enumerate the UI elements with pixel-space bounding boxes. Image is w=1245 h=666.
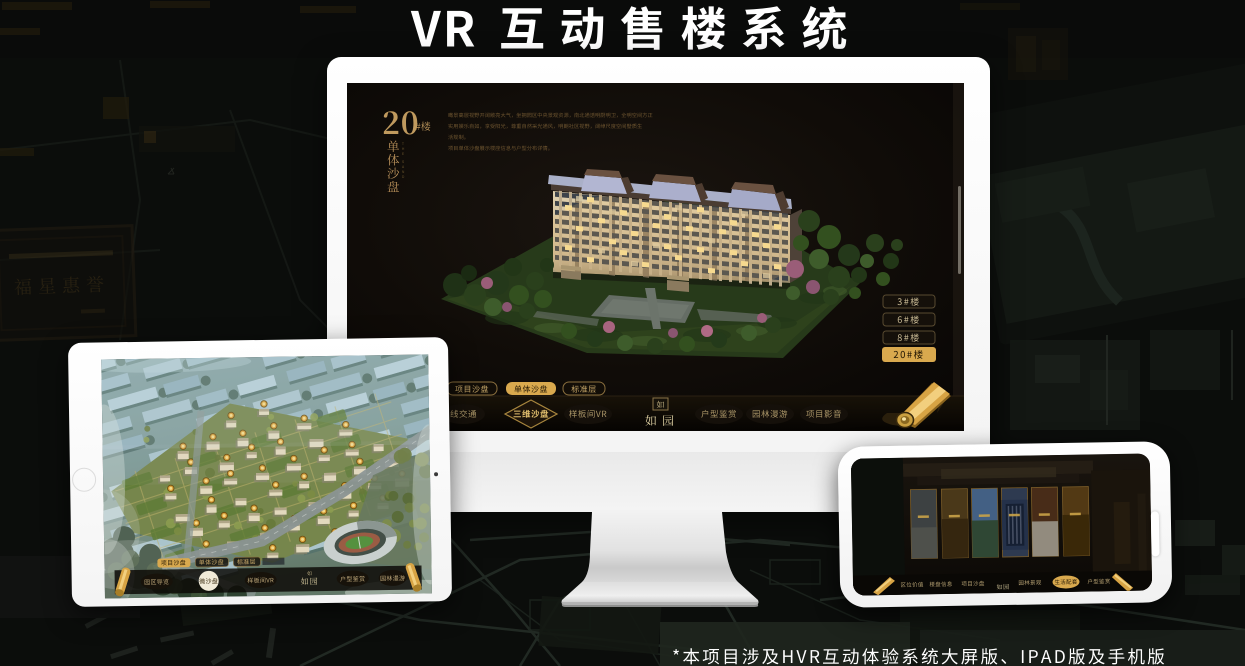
svg-text:T: T [402,142,404,146]
svg-text:E: E [402,152,404,156]
svg-text:S: S [402,160,404,164]
